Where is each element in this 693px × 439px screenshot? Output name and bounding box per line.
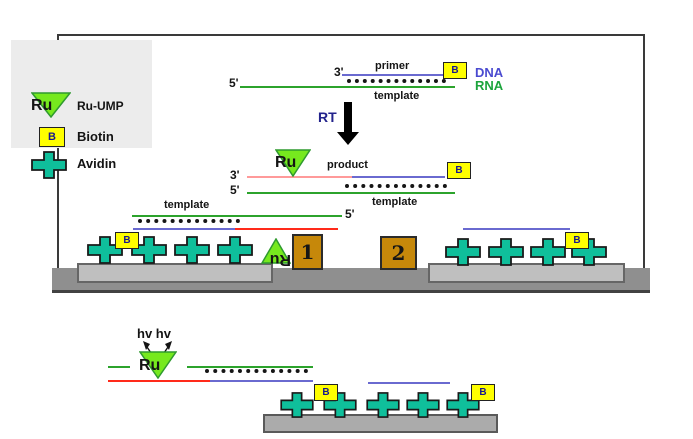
emission-template-line-left bbox=[108, 366, 130, 368]
capture-left-biotin-tag: B bbox=[115, 232, 139, 249]
avidin-icon bbox=[530, 238, 566, 266]
electrode-block-1: 1 bbox=[292, 234, 323, 270]
ru-capture-symbol: Ru bbox=[261, 250, 291, 268]
capture-primer-segment bbox=[133, 228, 235, 230]
capture-right-biotin-tag: B bbox=[565, 232, 589, 249]
emission-basepair-dots bbox=[205, 369, 308, 373]
emission-right-biotin-tag: B bbox=[471, 384, 495, 401]
avidin-icon bbox=[280, 392, 314, 418]
avidin-legend-label: Avidin bbox=[77, 157, 116, 170]
avidin-legend-icon bbox=[31, 150, 67, 180]
capture-right-strand-line bbox=[463, 228, 570, 230]
avidin-icon bbox=[217, 236, 253, 264]
figure-canvas: { "colors": { "dna_blue": "#4a4ad0", "rn… bbox=[0, 0, 693, 439]
ru-legend-symbol: Ru bbox=[31, 97, 71, 115]
legend: Ru Ru-UMP B Biotin Avidin bbox=[11, 40, 152, 148]
left-electrode-platform bbox=[77, 263, 273, 283]
rna-template-line bbox=[240, 86, 455, 88]
rt-label: RT bbox=[318, 110, 337, 124]
product-label: product bbox=[327, 160, 368, 171]
avidin-icon bbox=[174, 236, 210, 264]
top-biotin-tag: B bbox=[443, 62, 467, 79]
top-primer-label: primer bbox=[375, 61, 409, 72]
biotin-legend-label: Biotin bbox=[77, 130, 114, 143]
capture-labeled-segment bbox=[235, 228, 338, 230]
ru-product-symbol: Ru bbox=[275, 154, 311, 172]
avidin-icon bbox=[406, 392, 440, 418]
product-biotin-tag: B bbox=[447, 162, 471, 179]
emission-left-biotin-tag: B bbox=[314, 384, 338, 401]
product-template-label: template bbox=[372, 197, 417, 208]
product-strand-primer-segment bbox=[352, 176, 445, 178]
top-five-prime-label: 5' bbox=[229, 77, 239, 89]
capture-template-line bbox=[132, 215, 342, 217]
right-electrode-platform bbox=[428, 263, 625, 283]
emission-template-line-right bbox=[187, 366, 313, 368]
emission-right-strand-line bbox=[368, 382, 450, 384]
capture-basepair-dots bbox=[138, 219, 240, 223]
capture-five-prime-label: 5' bbox=[345, 208, 355, 220]
primer-strand-line bbox=[342, 74, 445, 76]
ru-ump-legend-label: Ru-UMP bbox=[77, 100, 124, 112]
avidin-icon bbox=[366, 392, 400, 418]
capture-template-label: template bbox=[164, 200, 209, 211]
rt-arrow bbox=[344, 102, 352, 133]
product-five-prime-label: 5' bbox=[230, 184, 240, 196]
emission-primer-segment bbox=[210, 380, 313, 382]
electrode-block-2: 2 bbox=[380, 236, 417, 270]
rt-arrow-head bbox=[337, 132, 359, 145]
ru-emission-symbol: Ru bbox=[139, 357, 177, 375]
hv-emission-label: hv hv bbox=[137, 327, 171, 340]
product-template-line bbox=[247, 192, 455, 194]
top-three-prime-label: 3' bbox=[334, 66, 344, 78]
top-template-label: template bbox=[374, 91, 419, 102]
emission-labeled-segment bbox=[108, 380, 210, 382]
product-basepair-dots bbox=[345, 184, 447, 188]
biotin-legend-icon: B bbox=[39, 127, 65, 147]
avidin-icon bbox=[488, 238, 524, 266]
avidin-icon bbox=[445, 238, 481, 266]
top-basepair-dots bbox=[347, 79, 446, 83]
product-three-prime-label: 3' bbox=[230, 169, 240, 181]
rna-label: RNA bbox=[475, 79, 503, 92]
